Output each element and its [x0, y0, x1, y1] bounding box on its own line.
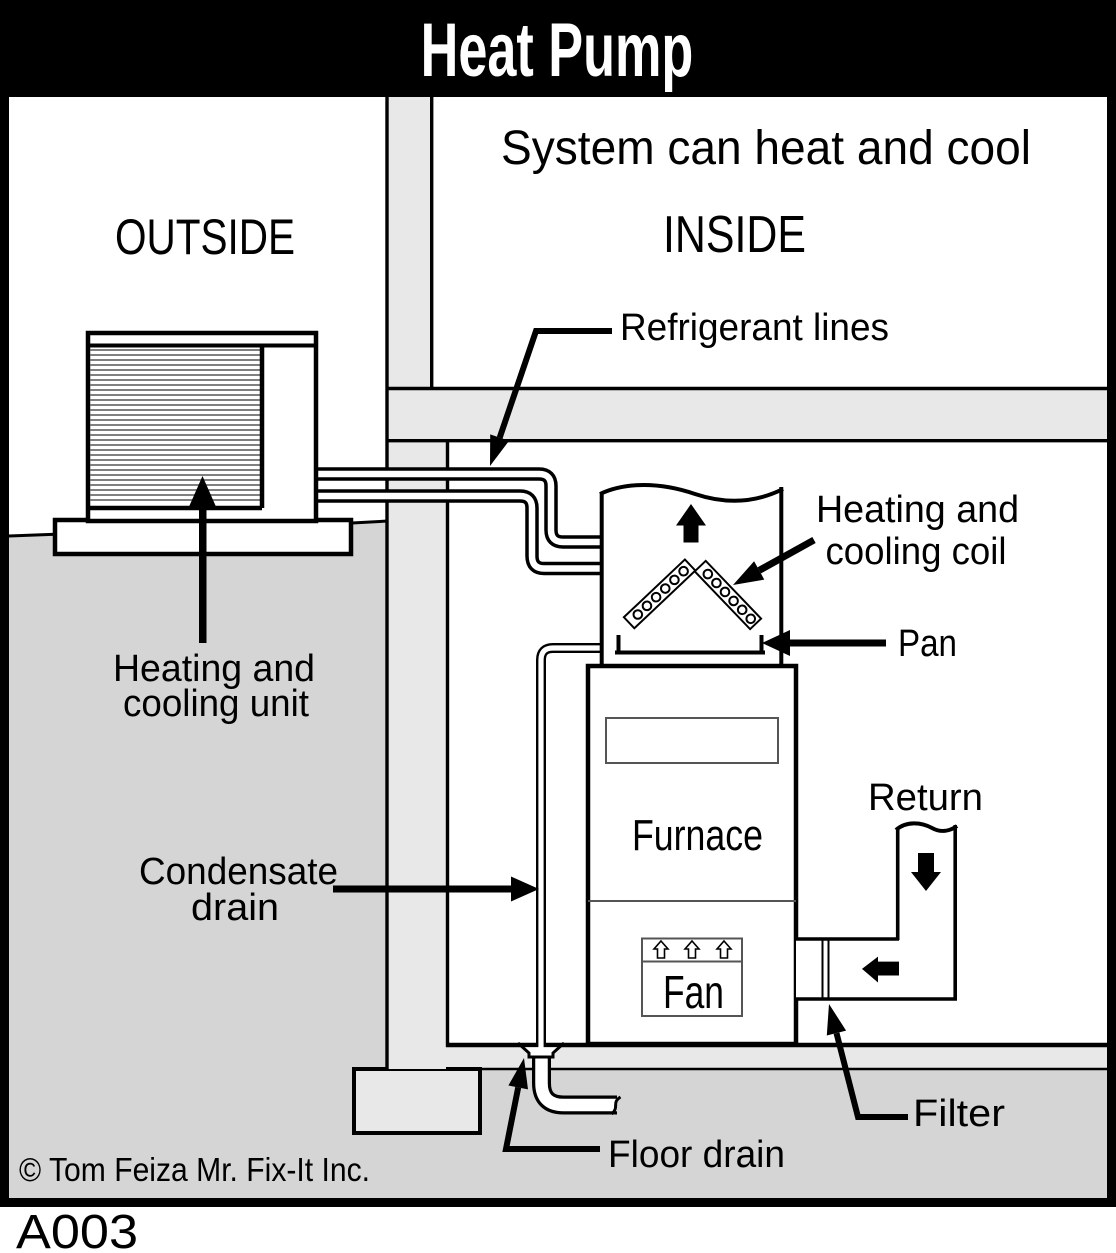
- svg-text:OUTSIDE: OUTSIDE: [115, 209, 295, 265]
- svg-text:System can heat and cool: System can heat and cool: [501, 122, 1031, 175]
- svg-text:INSIDE: INSIDE: [663, 206, 806, 264]
- svg-text:cooling unit: cooling unit: [123, 683, 309, 725]
- svg-text:Floor drain: Floor drain: [608, 1134, 785, 1176]
- svg-text:A003: A003: [16, 1206, 138, 1253]
- svg-text:Heating and: Heating and: [816, 489, 1019, 531]
- svg-text:Filter: Filter: [913, 1093, 1005, 1135]
- svg-text:Heat Pump: Heat Pump: [421, 7, 694, 92]
- svg-text:© Tom Feiza Mr. Fix-It Inc.: © Tom Feiza Mr. Fix-It Inc.: [19, 1151, 370, 1188]
- svg-text:Return: Return: [868, 777, 983, 819]
- svg-text:cooling coil: cooling coil: [826, 531, 1007, 573]
- svg-text:drain: drain: [191, 887, 279, 929]
- svg-text:Fan: Fan: [663, 966, 724, 1018]
- svg-text:Refrigerant lines: Refrigerant lines: [620, 307, 889, 349]
- svg-text:Furnace: Furnace: [632, 811, 763, 860]
- svg-text:Pan: Pan: [898, 623, 957, 665]
